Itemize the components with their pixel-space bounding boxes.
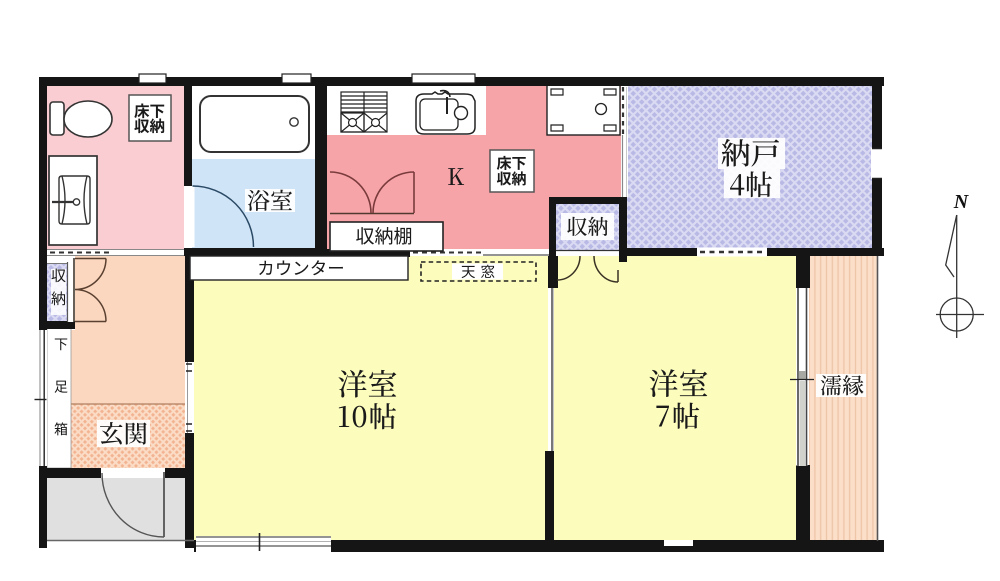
svg-text:N: N: [953, 191, 970, 213]
